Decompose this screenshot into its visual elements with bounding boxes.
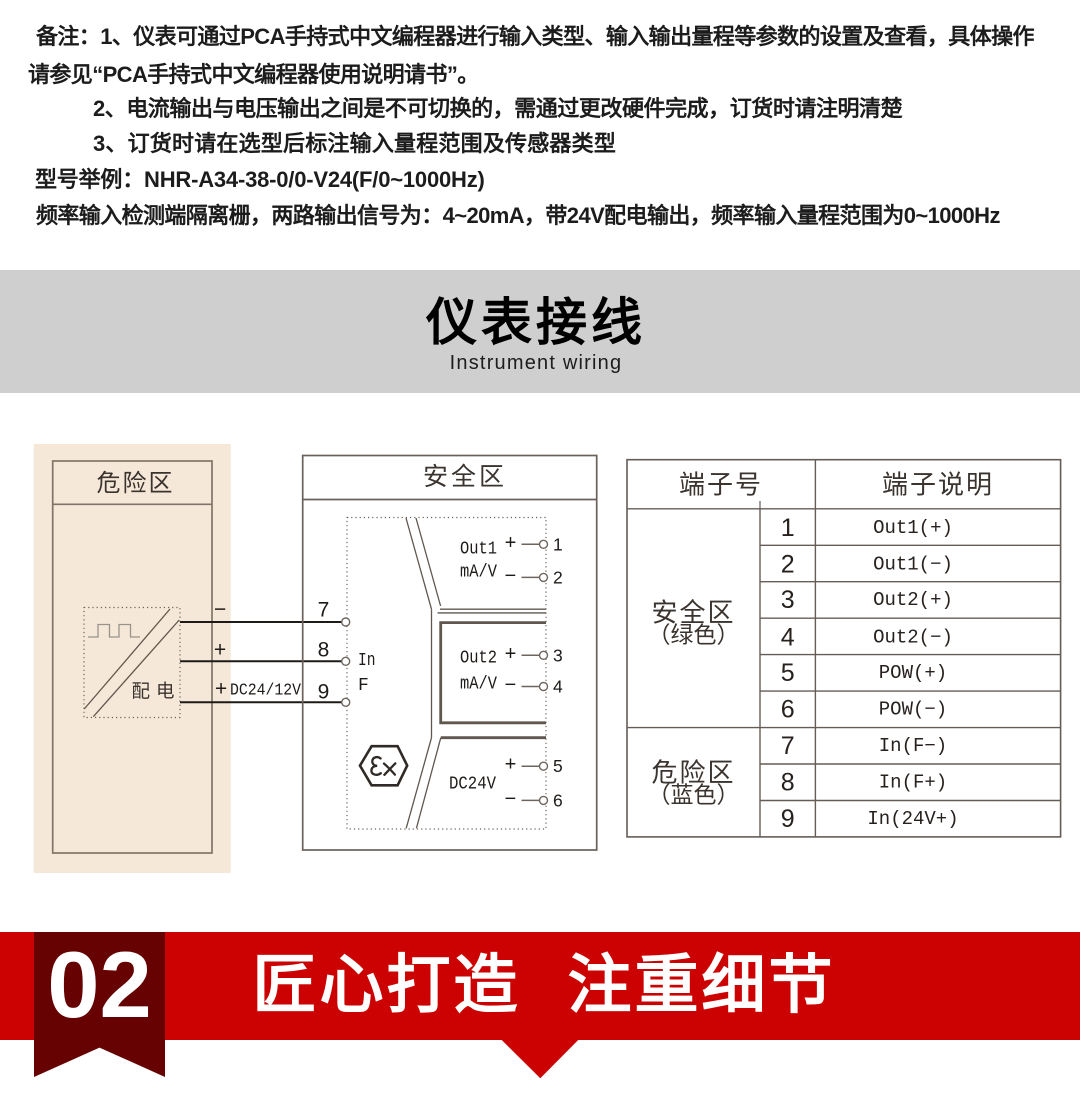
svg-text:mA/V: mA/V — [460, 563, 497, 583]
svg-text:+: + — [504, 533, 516, 556]
svg-text:Out1(+): Out1(+) — [873, 517, 953, 539]
svg-text:DC24/12V: DC24/12V — [230, 682, 302, 701]
svg-text:In: In — [358, 651, 376, 671]
svg-text:安全区: 安全区 — [423, 463, 507, 491]
svg-text:（绿色）: （绿色） — [648, 623, 740, 648]
svg-text:7: 7 — [318, 599, 330, 622]
svg-text:端子号: 端子号 — [679, 471, 763, 500]
svg-text:−: − — [504, 675, 516, 698]
svg-text:3: 3 — [781, 586, 795, 614]
svg-text:9: 9 — [781, 805, 795, 833]
svg-text:In(F+): In(F+) — [879, 772, 947, 794]
svg-text:6: 6 — [553, 790, 563, 810]
svg-text:Out1: Out1 — [460, 540, 497, 560]
svg-text:配电: 配电 — [131, 682, 180, 703]
svg-text:4: 4 — [781, 624, 795, 652]
svg-text:4: 4 — [553, 677, 563, 697]
svg-text:1: 1 — [781, 514, 795, 542]
svg-text:+: + — [215, 680, 228, 703]
svg-text:POW(−): POW(−) — [879, 699, 947, 721]
svg-text:7: 7 — [781, 732, 795, 760]
svg-text:Out2(+): Out2(+) — [873, 589, 953, 611]
svg-text:8: 8 — [781, 769, 795, 797]
svg-text:Out1(−): Out1(−) — [873, 554, 953, 576]
svg-text:危险区: 危险区 — [97, 470, 175, 497]
svg-text:（蓝色）: （蓝色） — [648, 783, 740, 808]
svg-text:8: 8 — [318, 639, 330, 662]
svg-text:9: 9 — [318, 681, 330, 704]
svg-text:F: F — [358, 676, 369, 696]
svg-text:5: 5 — [553, 756, 563, 776]
svg-text:−: − — [504, 566, 516, 589]
svg-text:6: 6 — [781, 696, 795, 724]
svg-text:2: 2 — [553, 567, 563, 587]
svg-text:+: + — [214, 641, 227, 664]
svg-text:2: 2 — [781, 551, 795, 579]
svg-text:5: 5 — [781, 659, 795, 687]
svg-text:−: − — [214, 600, 227, 623]
svg-text:+: + — [504, 755, 516, 778]
svg-text:DC24V: DC24V — [449, 775, 496, 795]
svg-text:−: − — [504, 789, 516, 812]
svg-text:3: 3 — [553, 645, 563, 665]
svg-text:端子说明: 端子说明 — [882, 471, 994, 500]
svg-text:+: + — [504, 644, 516, 667]
svg-text:1: 1 — [553, 534, 563, 554]
svg-text:POW(+): POW(+) — [879, 662, 947, 684]
svg-text:Out2(−): Out2(−) — [873, 627, 953, 649]
svg-text:Out2: Out2 — [460, 649, 497, 669]
svg-text:mA/V: mA/V — [460, 675, 497, 695]
svg-text:In(24V+): In(24V+) — [867, 808, 958, 830]
svg-text:In(F−): In(F−) — [879, 735, 947, 757]
